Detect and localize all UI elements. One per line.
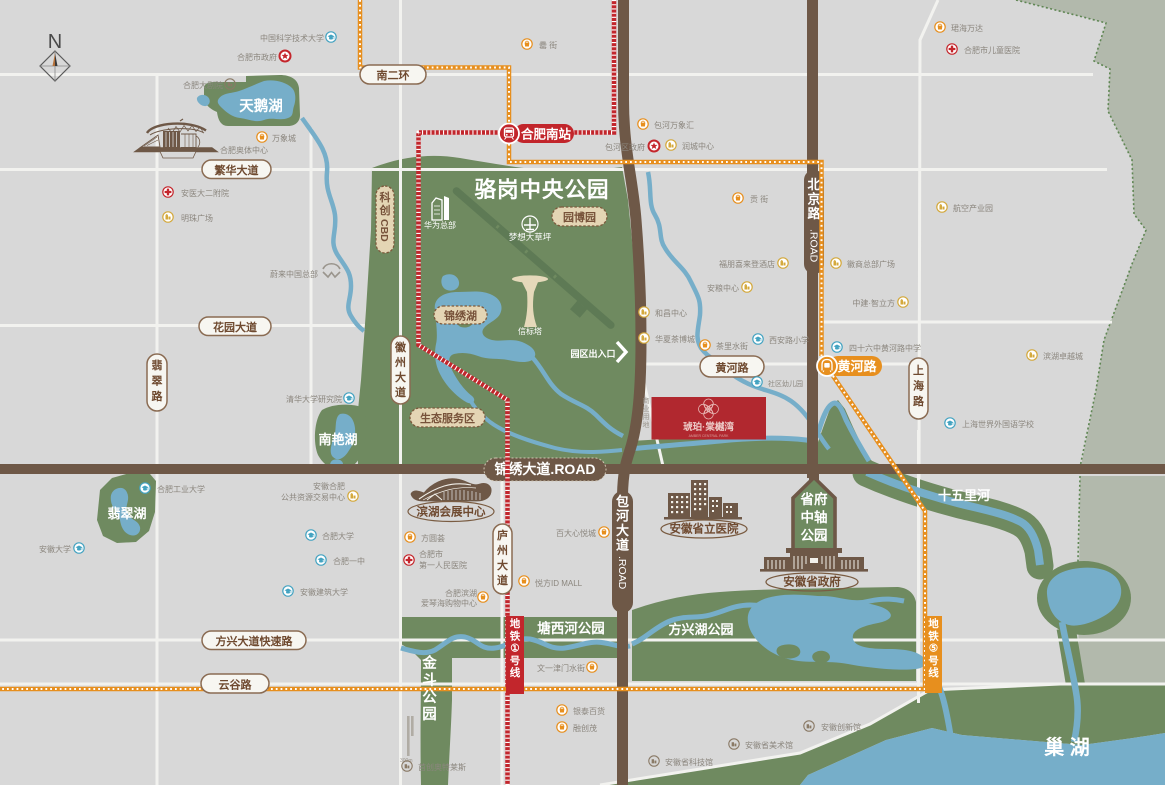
svg-text:黄河路: 黄河路 [837,359,877,374]
svg-text:南艳湖: 南艳湖 [318,432,357,447]
svg-text:合肥滨湖: 合肥滨湖 [445,588,477,598]
svg-text:万象城: 万象城 [272,133,296,143]
svg-text:滨湖卓越城: 滨湖卓越城 [1043,351,1083,361]
svg-text:合肥市政府: 合肥市政府 [237,52,277,62]
svg-text:省府: 省府 [800,491,829,507]
svg-text:滨湖会展中心: 滨湖会展中心 [417,505,486,519]
svg-text:天鹅湖: 天鹅湖 [239,97,283,115]
svg-text:黄河路: 黄河路 [716,361,750,375]
svg-text:安粮中心: 安粮中心 [707,283,739,293]
svg-text:蔚来中国总部: 蔚来中国总部 [270,269,318,279]
svg-text:安徽创新馆: 安徽创新馆 [821,722,861,732]
svg-text:南二环: 南二环 [377,68,410,82]
svg-text:公园: 公园 [801,528,828,543]
svg-text:安徽省立医院: 安徽省立医院 [670,522,739,536]
svg-text:百大心悦城: 百大心悦城 [556,528,596,538]
svg-text:珺海万达: 珺海万达 [951,23,983,33]
svg-text:塘西河公园: 塘西河公园 [537,620,605,636]
svg-text:航空产业园: 航空产业园 [953,203,993,213]
svg-text:合肥大学: 合肥大学 [322,531,354,541]
svg-text:公共资源交易中心: 公共资源交易中心 [281,492,345,502]
svg-text:金斗公园: 金斗公园 [421,654,437,723]
svg-text:园区出入口: 园区出入口 [570,348,615,359]
svg-text:云谷路: 云谷路 [219,678,253,692]
svg-text:中国科学技术大学: 中国科学技术大学 [260,33,324,43]
svg-text:科创: 科创 [379,190,391,217]
svg-text:十五里河: 十五里河 [938,488,990,503]
svg-text:安徽省美术馆: 安徽省美术馆 [745,740,793,750]
svg-text:安医大二附院: 安医大二附院 [181,188,229,198]
svg-text:安徽建筑大学: 安徽建筑大学 [300,587,348,597]
svg-text:银泰百货: 银泰百货 [573,706,605,716]
svg-text:AMBER CENTRAL PARK: AMBER CENTRAL PARK [689,434,730,438]
svg-text:花园大道: 花园大道 [213,320,257,334]
svg-text:.ROAD: .ROAD [616,556,628,590]
svg-text:地铁⑤号线: 地铁⑤号线 [928,617,939,679]
svg-text:福朋喜来登酒店: 福朋喜来登酒店 [719,259,775,269]
svg-text:安徽省科技馆: 安徽省科技馆 [665,757,713,767]
svg-text:包河大道: 包河大道 [616,494,629,553]
svg-text:上海世界外国语学校: 上海世界外国语学校 [962,419,1034,429]
svg-text:悦方ID MALL: 悦方ID MALL [535,578,583,588]
svg-text:N: N [48,31,62,53]
svg-text:合肥市儿童医院: 合肥市儿童医院 [964,45,1020,55]
svg-text:方圆荟: 方圆荟 [421,533,445,543]
svg-text:翡翠路: 翡翠路 [152,358,164,403]
svg-text:上海路: 上海路 [913,363,925,408]
svg-text:徽商总部广场: 徽商总部广场 [847,259,895,269]
svg-text:方兴湖公园: 方兴湖公园 [668,622,733,637]
svg-text:首创奥特莱斯: 首创奥特莱斯 [418,762,466,772]
svg-text:翡翠湖: 翡翠湖 [107,506,146,521]
svg-text:生态服务区: 生态服务区 [420,411,475,425]
svg-text:合肥奥体中心: 合肥奥体中心 [220,145,268,155]
svg-text:中建·智立方: 中建·智立方 [852,298,895,308]
svg-text:园博园: 园博园 [563,210,596,224]
svg-text:合肥市: 合肥市 [419,549,443,559]
svg-text:合肥工业大学: 合肥工业大学 [157,484,205,494]
svg-text:合肥一中: 合肥一中 [333,556,365,566]
svg-text:信标塔: 信标塔 [518,326,542,336]
svg-text:润城中心: 润城中心 [682,141,714,151]
svg-text:合肥大剧院: 合肥大剧院 [183,80,223,90]
svg-text:贡 街: 贡 街 [750,194,768,204]
svg-text:梦想大草坪: 梦想大草坪 [509,232,552,242]
svg-text:锦绣湖: 锦绣湖 [444,309,477,323]
svg-text:包河区政府: 包河区政府 [605,142,645,152]
svg-text:安徽省政府: 安徽省政府 [783,575,841,589]
svg-text:CBD: CBD [378,219,390,242]
svg-text:第一人民医院: 第一人民医院 [419,560,467,570]
svg-text:西安路小学: 西安路小学 [769,335,809,345]
svg-text:四十六中黄河路中学: 四十六中黄河路中学 [849,343,921,353]
svg-text:合肥南站: 合肥南站 [521,127,572,142]
svg-text:中轴: 中轴 [801,509,828,525]
svg-text:爱琴海购物中心: 爱琴海购物中心 [421,598,477,608]
svg-text:巢 湖: 巢 湖 [1043,735,1090,759]
svg-text:.ROAD: .ROAD [808,229,820,263]
svg-text:融创茂: 融创茂 [573,723,597,733]
svg-text:清华大学研究院: 清华大学研究院 [286,394,342,404]
svg-text:社区幼儿园: 社区幼儿园 [768,379,803,388]
svg-text:文一津门水街: 文一津门水街 [537,663,585,673]
svg-text:商业用地: 商业用地 [643,396,650,429]
svg-text:繁华大道: 繁华大道 [214,163,259,177]
svg-text:安徽大学: 安徽大学 [39,544,71,554]
svg-text:华为总部: 华为总部 [424,220,456,230]
svg-text:包河万象汇: 包河万象汇 [654,120,694,130]
svg-text:和昌中心: 和昌中心 [655,308,687,318]
svg-text:明珠广场: 明珠广场 [181,213,213,223]
svg-text:罍 街: 罍 街 [539,40,557,50]
svg-text:安徽合肥: 安徽合肥 [313,481,345,491]
svg-text:琥珀·棠樾湾: 琥珀·棠樾湾 [683,421,734,433]
svg-text:骆岗中央公园: 骆岗中央公园 [474,177,609,202]
svg-text:茶里水街: 茶里水街 [716,341,748,351]
svg-text:华夏茶博城: 华夏茶博城 [655,334,695,344]
svg-text:地铁①号线: 地铁①号线 [510,617,521,679]
svg-text:方兴大道快速路: 方兴大道快速路 [216,634,294,648]
